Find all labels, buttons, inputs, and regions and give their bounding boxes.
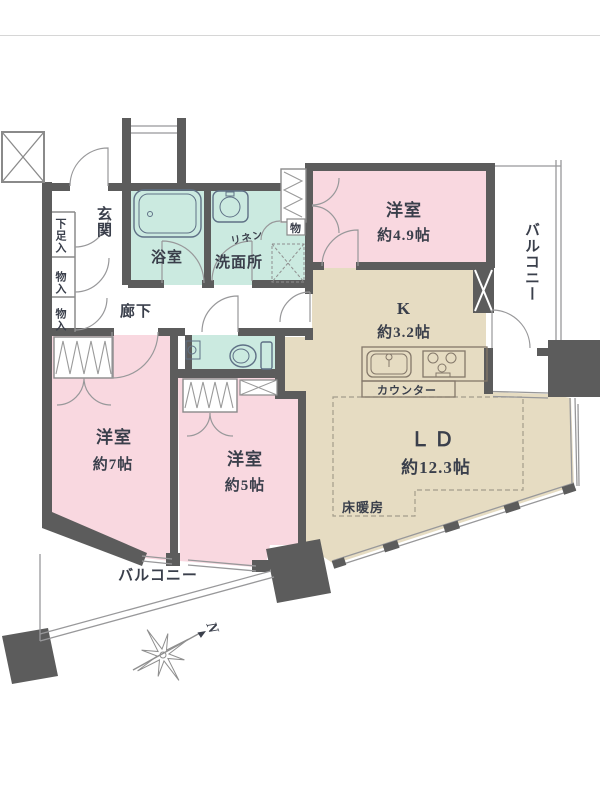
closet-small-label: 物 xyxy=(290,221,302,235)
hallway-label: 廊下 xyxy=(120,302,152,320)
wall-toilet-bottom xyxy=(178,369,285,378)
balcony-east-label: バルコニー xyxy=(523,222,540,302)
balcony-east-door xyxy=(492,310,530,348)
wall-bath-south xyxy=(128,280,164,288)
pillar-east xyxy=(548,340,600,397)
balcony-south-label: バルコニー xyxy=(118,567,198,584)
kitchen-ld-floor xyxy=(285,268,574,564)
ld-door xyxy=(280,292,310,322)
wall-bedrooms-divider xyxy=(170,335,178,563)
compass-star xyxy=(138,630,189,681)
ledge-line-east xyxy=(578,404,579,486)
storage-top-label: 物入 xyxy=(54,270,67,295)
mullion-3 xyxy=(444,524,459,529)
wall-bedroom-east-right xyxy=(486,171,495,268)
compass-icon xyxy=(133,630,206,681)
shaft-box xyxy=(2,132,44,182)
floor-plan: 玄関 下足入 物入 物入 浴室 リネン 洗面所 物 廊下 洋室 約4.9帖 バル… xyxy=(0,0,600,800)
floor-heating-label: 床暖房 xyxy=(342,500,384,515)
counter-label: カウンター xyxy=(377,384,437,397)
bathroom-label: 浴室 xyxy=(151,248,183,266)
ld-right-window-2 xyxy=(575,398,577,486)
wall-hall-south-b xyxy=(158,328,185,336)
washroom-label: 洗面所 xyxy=(215,253,263,271)
wall-bedroom-east-top xyxy=(305,163,495,171)
mullion-2 xyxy=(505,505,520,510)
shoe-cupboard-label: 下足入 xyxy=(54,218,67,254)
storage-bottom-label: 物入 xyxy=(54,307,67,332)
pipe-space xyxy=(473,268,494,313)
entrance-door xyxy=(70,148,108,186)
toilet-door xyxy=(202,296,238,332)
kitchen-name: K xyxy=(397,299,411,318)
pillar-south-west xyxy=(2,628,58,684)
bedroom-east-area: 約4.9帖 xyxy=(377,226,431,244)
mullion-4 xyxy=(384,544,399,549)
wall-bedroom-east-bottom-b xyxy=(356,262,486,270)
wall-balcony-stub xyxy=(537,348,548,356)
living-dining-name: ＬＤ xyxy=(410,429,458,451)
wall-bath-left xyxy=(122,185,131,285)
wall-wash-south-b xyxy=(252,280,308,288)
mullion-5 xyxy=(333,561,345,565)
mullion-1 xyxy=(563,487,575,491)
duct-wall-left xyxy=(122,118,131,185)
wall-kitchen-east xyxy=(484,348,493,394)
bedroom-west-name: 洋室 xyxy=(96,427,132,447)
storage-top-door xyxy=(75,258,109,292)
duct-wall-right xyxy=(177,118,186,185)
living-dining-area: 約12.3帖 xyxy=(401,457,471,477)
north-arrowhead xyxy=(198,631,207,638)
wall-top-a xyxy=(52,183,70,191)
bedroom-east-name: 洋室 xyxy=(386,200,422,220)
bedroom-south-name: 洋室 xyxy=(227,449,263,469)
bedroom-south-area: 約5帖 xyxy=(225,476,266,494)
wall-toilet-top xyxy=(238,328,312,336)
balcony-south-rail-outer xyxy=(40,577,274,641)
kitchen-area: 約3.2帖 xyxy=(377,323,431,341)
floor-plan-page: 玄関 下足入 物入 物入 浴室 リネン 洗面所 物 廊下 洋室 約4.9帖 バル… xyxy=(0,0,600,800)
bedroom-west-area: 約7帖 xyxy=(93,455,134,473)
compass-north-label: N xyxy=(202,619,221,637)
wall-bath-wash-divider xyxy=(204,188,211,285)
storage-bottom-door xyxy=(75,298,107,330)
wall-bedroom-south-right xyxy=(298,395,306,547)
entrance-label: 玄関 xyxy=(95,205,112,238)
wall-kitchen-west-a xyxy=(305,262,313,294)
pillar-south-mid xyxy=(266,539,331,603)
wall-west xyxy=(42,182,52,522)
